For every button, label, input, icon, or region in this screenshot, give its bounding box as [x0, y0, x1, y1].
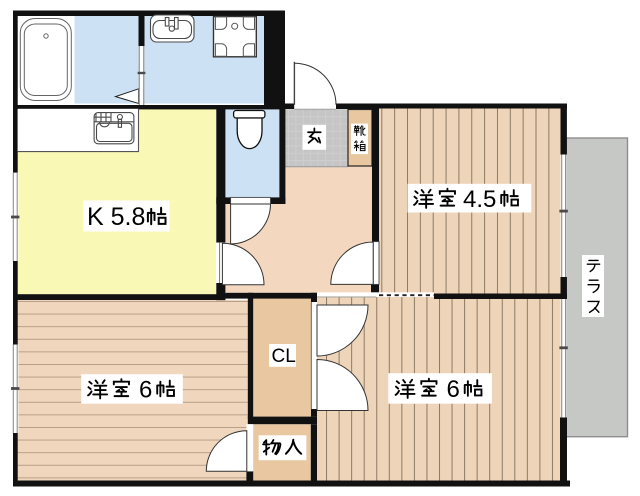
svg-text:6: 6	[447, 376, 460, 403]
svg-text:CL: CL	[272, 346, 296, 367]
svg-text:4.5: 4.5	[463, 186, 496, 213]
svg-text:K 5.8: K 5.8	[87, 203, 145, 231]
svg-text:6: 6	[139, 377, 152, 404]
